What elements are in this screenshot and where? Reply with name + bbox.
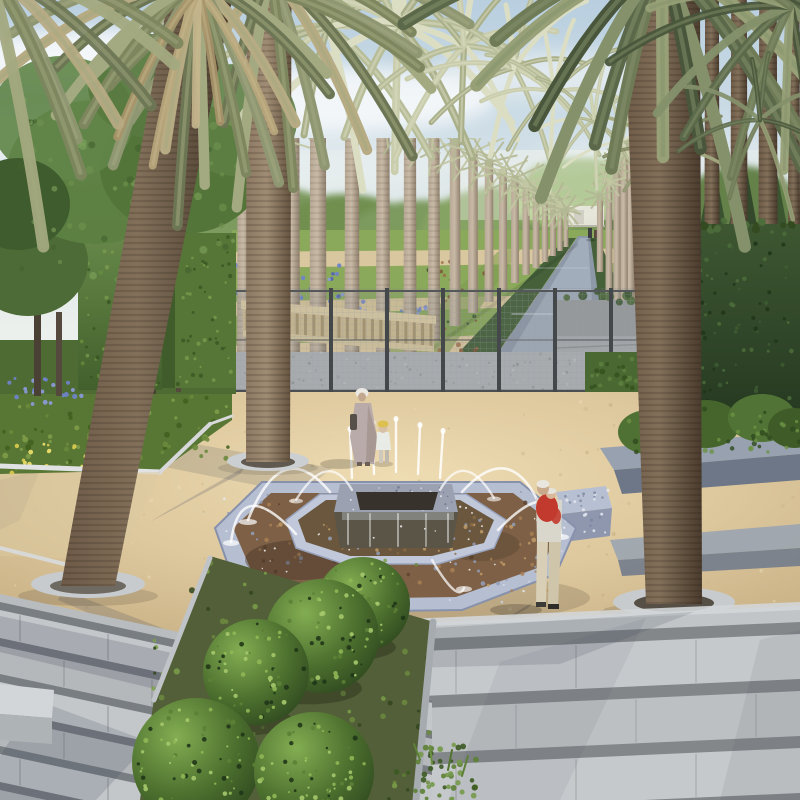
scene-svg [0, 0, 800, 800]
park-garden-render [0, 0, 800, 800]
scene-root [0, 0, 800, 800]
